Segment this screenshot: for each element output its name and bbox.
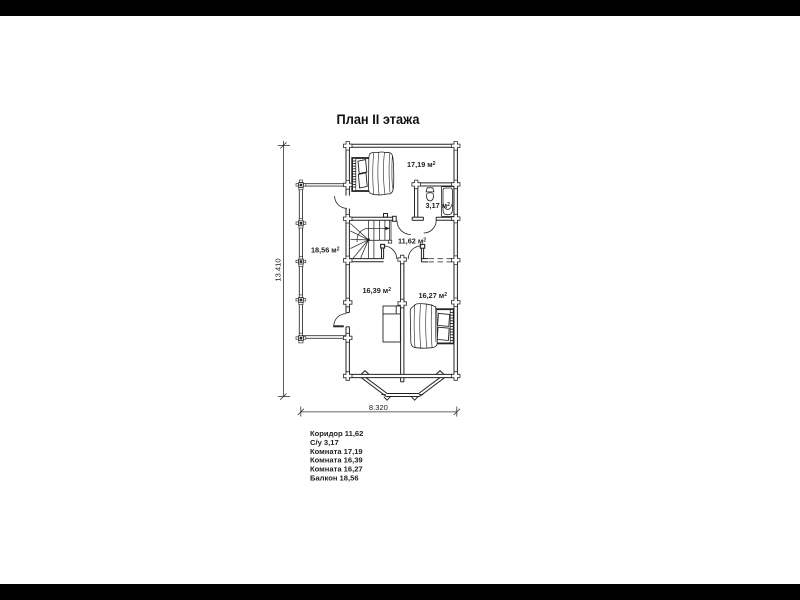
svg-text:Комната 17,19: Комната 17,19 bbox=[310, 447, 363, 456]
svg-text:11,62 м2: 11,62 м2 bbox=[398, 237, 426, 246]
svg-text:Комната 16,27: Комната 16,27 bbox=[310, 465, 363, 474]
svg-text:Комната 16,39: Комната 16,39 bbox=[310, 456, 363, 465]
svg-text:18,56 м2: 18,56 м2 bbox=[311, 246, 340, 255]
svg-text:17,19 м2: 17,19 м2 bbox=[407, 160, 436, 169]
svg-text:План II этажа: План II этажа bbox=[337, 111, 420, 127]
svg-text:Коридор 11,62: Коридор 11,62 bbox=[310, 429, 363, 438]
svg-text:С/у 3,17: С/у 3,17 bbox=[310, 438, 339, 447]
svg-text:16,39 м2: 16,39 м2 bbox=[363, 286, 392, 295]
svg-text:3,17 м2: 3,17 м2 bbox=[426, 201, 451, 210]
svg-text:Балкон 18,56: Балкон 18,56 bbox=[310, 474, 359, 483]
svg-text:8.320: 8.320 bbox=[369, 403, 388, 412]
svg-text:13.410: 13.410 bbox=[274, 258, 283, 281]
svg-text:16,27 м2: 16,27 м2 bbox=[419, 291, 448, 300]
